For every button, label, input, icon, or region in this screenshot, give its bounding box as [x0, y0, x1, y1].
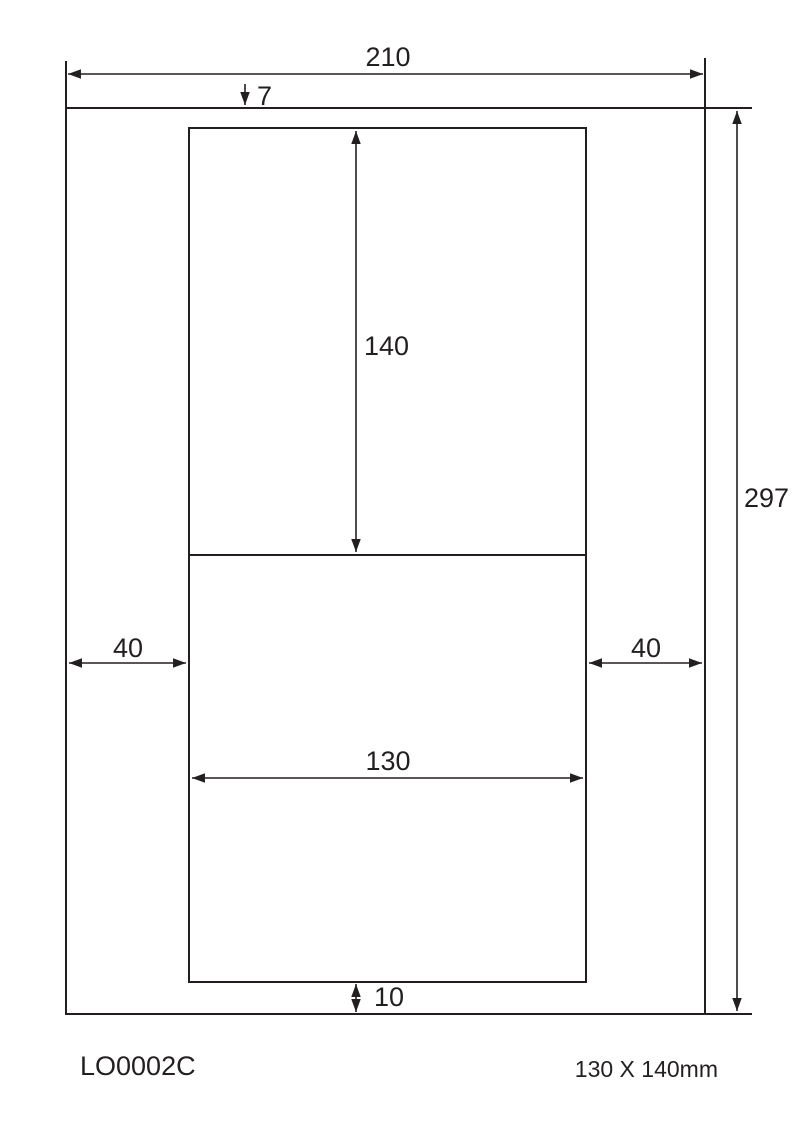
dim-bottom-margin-label: 10: [374, 982, 404, 1012]
label-size-note: 130 X 140mm: [575, 1056, 718, 1082]
dim-label-width-label: 130: [365, 746, 410, 776]
dim-top-margin-label: 7: [257, 81, 272, 111]
dim-page-height-label: 297: [744, 483, 789, 513]
dim-left-margin-label: 40: [113, 633, 143, 663]
diagram-canvas: 210 7 140 297 40 40 130 10 LO0002C 130 X…: [0, 0, 796, 1124]
dim-label-height-label: 140: [364, 331, 409, 361]
dim-right-margin-label: 40: [631, 633, 661, 663]
label-sheet-dimension-diagram: 210 7 140 297 40 40 130 10 LO0002C 130 X…: [0, 0, 796, 1124]
dim-page-width-label: 210: [365, 42, 410, 72]
product-code: LO0002C: [80, 1051, 196, 1081]
